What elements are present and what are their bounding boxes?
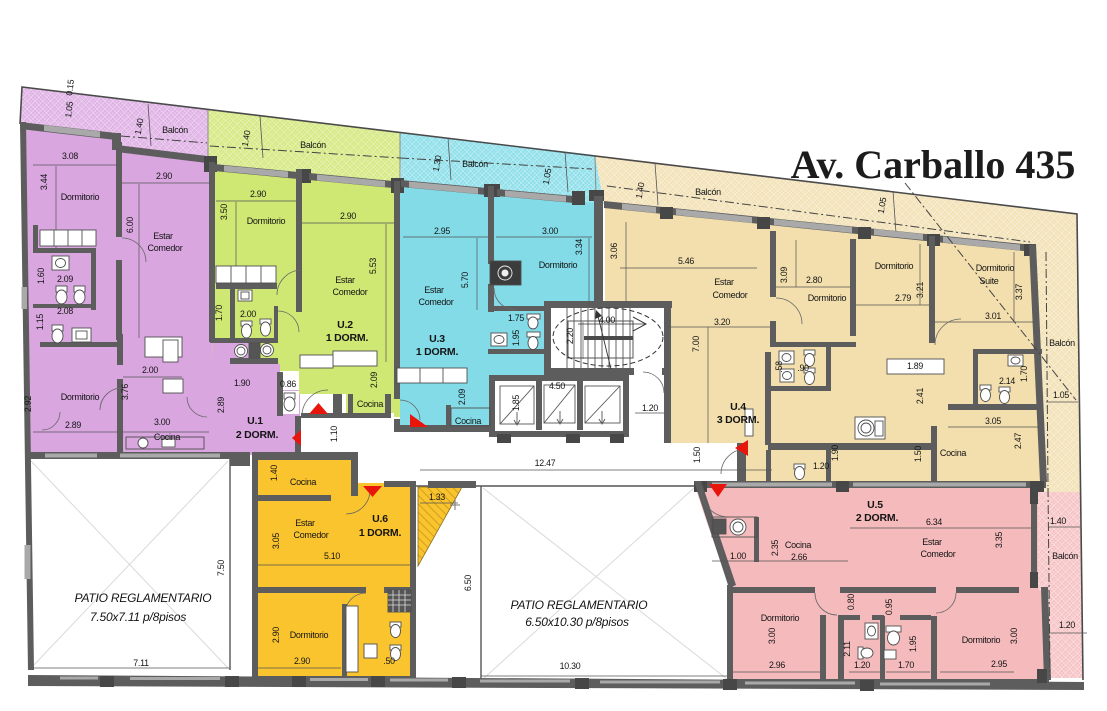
svg-text:Balcón: Balcón <box>162 125 188 135</box>
svg-text:3.34: 3.34 <box>574 239 584 255</box>
svg-text:2.96: 2.96 <box>769 660 785 670</box>
svg-text:3.00: 3.00 <box>154 417 170 427</box>
svg-text:3.08: 3.08 <box>62 151 78 161</box>
svg-text:Dormitorio: Dormitorio <box>61 392 100 402</box>
svg-text:Comedor: Comedor <box>333 287 368 297</box>
svg-text:7.11: 7.11 <box>133 658 149 668</box>
svg-text:U.6: U.6 <box>372 513 388 525</box>
svg-text:3.09: 3.09 <box>779 267 789 283</box>
svg-text:1.50: 1.50 <box>913 446 923 462</box>
svg-text:1.20: 1.20 <box>854 660 870 670</box>
svg-text:Comedor: Comedor <box>921 549 956 559</box>
svg-text:Dormitorio: Dormitorio <box>539 260 578 270</box>
svg-text:PATIO REGLAMENTARIO: PATIO REGLAMENTARIO <box>511 598 648 612</box>
svg-text:2 DORM.: 2 DORM. <box>856 512 899 524</box>
svg-text:3.50: 3.50 <box>219 204 229 220</box>
svg-text:.58: .58 <box>774 361 784 373</box>
svg-text:2.80: 2.80 <box>806 275 822 285</box>
svg-text:Estar: Estar <box>922 537 942 547</box>
svg-text:1.90: 1.90 <box>234 378 250 388</box>
svg-text:Balcón: Balcón <box>462 159 488 169</box>
svg-text:6.50x10.30 p/8pisos: 6.50x10.30 p/8pisos <box>525 615 629 629</box>
svg-text:1.05: 1.05 <box>1053 390 1069 400</box>
svg-text:2.00: 2.00 <box>142 365 158 375</box>
svg-text:Balcón: Balcón <box>1049 338 1075 348</box>
svg-text:U.4: U.4 <box>730 401 746 413</box>
svg-text:1.75: 1.75 <box>508 313 524 323</box>
svg-text:2 DORM.: 2 DORM. <box>236 429 279 441</box>
svg-text:2.92: 2.92 <box>23 396 33 412</box>
svg-text:1.70: 1.70 <box>214 305 224 321</box>
svg-text:U.3: U.3 <box>429 333 445 345</box>
svg-text:1.00: 1.00 <box>730 551 746 561</box>
svg-text:1.89: 1.89 <box>907 361 923 371</box>
svg-text:2.41: 2.41 <box>915 388 925 404</box>
svg-text:U.1: U.1 <box>247 415 263 427</box>
svg-text:2.14: 2.14 <box>999 376 1015 386</box>
svg-text:2.35: 2.35 <box>770 540 780 556</box>
svg-text:1.20: 1.20 <box>813 461 829 471</box>
svg-text:Comedor: Comedor <box>713 290 748 300</box>
svg-text:3.05: 3.05 <box>271 533 281 549</box>
svg-text:0.15: 0.15 <box>64 79 76 97</box>
svg-text:2.95: 2.95 <box>991 659 1007 669</box>
svg-text:1.70: 1.70 <box>898 660 914 670</box>
svg-text:3.35: 3.35 <box>994 532 1004 548</box>
svg-text:2.79: 2.79 <box>895 293 911 303</box>
svg-text:Cocina: Cocina <box>290 477 317 487</box>
svg-text:Balcón: Balcón <box>695 187 721 197</box>
svg-text:3.00: 3.00 <box>767 628 777 644</box>
svg-text:Balcón: Balcón <box>1052 551 1078 561</box>
svg-text:5.46: 5.46 <box>678 256 694 266</box>
svg-text:Cocina: Cocina <box>785 540 812 550</box>
svg-text:Estar: Estar <box>714 277 734 287</box>
svg-text:Cocina: Cocina <box>357 399 384 409</box>
svg-text:2.11: 2.11 <box>842 641 852 657</box>
svg-text:1.40: 1.40 <box>269 465 279 481</box>
svg-text:1.33: 1.33 <box>429 492 445 502</box>
svg-text:1.60: 1.60 <box>36 268 46 284</box>
svg-text:1.95: 1.95 <box>511 330 521 346</box>
svg-text:Estar: Estar <box>295 518 315 528</box>
svg-text:2.90: 2.90 <box>340 211 356 221</box>
svg-text:0.95: 0.95 <box>884 599 894 615</box>
svg-text:3.00: 3.00 <box>1009 628 1019 644</box>
svg-text:.50: .50 <box>383 656 395 666</box>
svg-text:7.50: 7.50 <box>216 560 226 576</box>
svg-text:1.70: 1.70 <box>1019 366 1029 382</box>
svg-text:2.09: 2.09 <box>457 389 467 405</box>
svg-text:Av. Carballo 435: Av. Carballo 435 <box>791 142 1076 187</box>
svg-text:Suite: Suite <box>979 276 998 286</box>
svg-text:2.89: 2.89 <box>216 397 226 413</box>
svg-text:1.10: 1.10 <box>329 426 339 442</box>
svg-text:Comedor: Comedor <box>148 243 183 253</box>
svg-text:2.08: 2.08 <box>57 306 73 316</box>
svg-text:4.50: 4.50 <box>549 381 565 391</box>
svg-text:Dormitorio: Dormitorio <box>290 630 329 640</box>
svg-text:2.09: 2.09 <box>369 372 379 388</box>
svg-text:PATIO REGLAMENTARIO: PATIO REGLAMENTARIO <box>75 591 212 605</box>
svg-text:Estar: Estar <box>335 275 355 285</box>
svg-text:5.53: 5.53 <box>368 258 378 274</box>
svg-text:2.90: 2.90 <box>250 189 266 199</box>
svg-text:1 DORM.: 1 DORM. <box>416 346 459 358</box>
svg-text:5.10: 5.10 <box>324 551 340 561</box>
svg-text:3.44: 3.44 <box>39 174 49 190</box>
svg-text:Dormitorio: Dormitorio <box>247 216 286 226</box>
svg-text:10.30: 10.30 <box>560 661 581 671</box>
svg-text:2.90: 2.90 <box>271 627 281 643</box>
svg-text:0.80: 0.80 <box>846 594 856 610</box>
svg-text:6.50: 6.50 <box>463 575 473 591</box>
svg-text:5.70: 5.70 <box>460 272 470 288</box>
svg-text:1.15: 1.15 <box>35 314 45 330</box>
svg-text:2.66: 2.66 <box>791 552 807 562</box>
svg-text:Dormitorio: Dormitorio <box>808 293 847 303</box>
svg-text:1.20: 1.20 <box>1059 620 1075 630</box>
svg-text:2.00: 2.00 <box>240 309 256 319</box>
svg-text:3 DORM.: 3 DORM. <box>717 414 760 426</box>
svg-text:3.37: 3.37 <box>1014 284 1024 300</box>
svg-text:2.47: 2.47 <box>1013 433 1023 449</box>
svg-text:1.40: 1.40 <box>1050 516 1066 526</box>
svg-text:12.47: 12.47 <box>535 458 556 468</box>
svg-text:1.20: 1.20 <box>642 403 658 413</box>
svg-text:Estar: Estar <box>424 285 444 295</box>
svg-text:4.00: 4.00 <box>599 315 615 325</box>
svg-text:2.90: 2.90 <box>156 171 172 181</box>
svg-text:7.00: 7.00 <box>691 336 701 352</box>
svg-text:3.06: 3.06 <box>609 243 619 259</box>
svg-text:3.20: 3.20 <box>714 317 730 327</box>
svg-text:3.05: 3.05 <box>985 416 1001 426</box>
svg-text:1.95: 1.95 <box>908 636 918 652</box>
svg-text:Cocina: Cocina <box>455 416 482 426</box>
svg-text:U.2: U.2 <box>337 319 353 331</box>
svg-text:2.90: 2.90 <box>294 656 310 666</box>
svg-text:1 DORM.: 1 DORM. <box>359 527 402 539</box>
svg-text:Dormitorio: Dormitorio <box>875 261 914 271</box>
svg-text:3.01: 3.01 <box>985 311 1001 321</box>
svg-text:6.34: 6.34 <box>926 517 942 527</box>
svg-text:Comedor: Comedor <box>419 297 454 307</box>
svg-text:Dormitorio: Dormitorio <box>761 613 800 623</box>
svg-text:Estar: Estar <box>153 231 173 241</box>
svg-text:Comedor: Comedor <box>294 530 329 540</box>
svg-text:Cocina: Cocina <box>154 432 181 442</box>
svg-text:2.20: 2.20 <box>565 328 575 344</box>
svg-text:1.50: 1.50 <box>692 447 702 463</box>
svg-text:.90: .90 <box>797 363 809 373</box>
svg-text:1 DORM.: 1 DORM. <box>326 332 369 344</box>
svg-text:1.90: 1.90 <box>830 445 840 461</box>
svg-text:U.5: U.5 <box>867 499 883 511</box>
svg-text:0.86: 0.86 <box>280 379 296 389</box>
svg-text:Dormitorio: Dormitorio <box>976 263 1015 273</box>
svg-text:2.95: 2.95 <box>434 226 450 236</box>
svg-text:7.50x7.11 p/8pisos: 7.50x7.11 p/8pisos <box>90 610 186 624</box>
svg-text:Dormitorio: Dormitorio <box>61 192 100 202</box>
svg-text:3.76: 3.76 <box>120 384 130 400</box>
svg-text:1.85: 1.85 <box>511 395 521 411</box>
svg-text:6.00: 6.00 <box>125 217 135 233</box>
svg-text:3.21: 3.21 <box>915 282 925 298</box>
svg-text:Cocina: Cocina <box>940 448 967 458</box>
svg-text:Dormitorio: Dormitorio <box>962 635 1001 645</box>
svg-text:2.89: 2.89 <box>65 420 81 430</box>
svg-text:Balcón: Balcón <box>300 140 326 150</box>
svg-text:2.09: 2.09 <box>57 274 73 284</box>
svg-text:1.05: 1.05 <box>63 101 75 119</box>
svg-text:3.00: 3.00 <box>542 226 558 236</box>
